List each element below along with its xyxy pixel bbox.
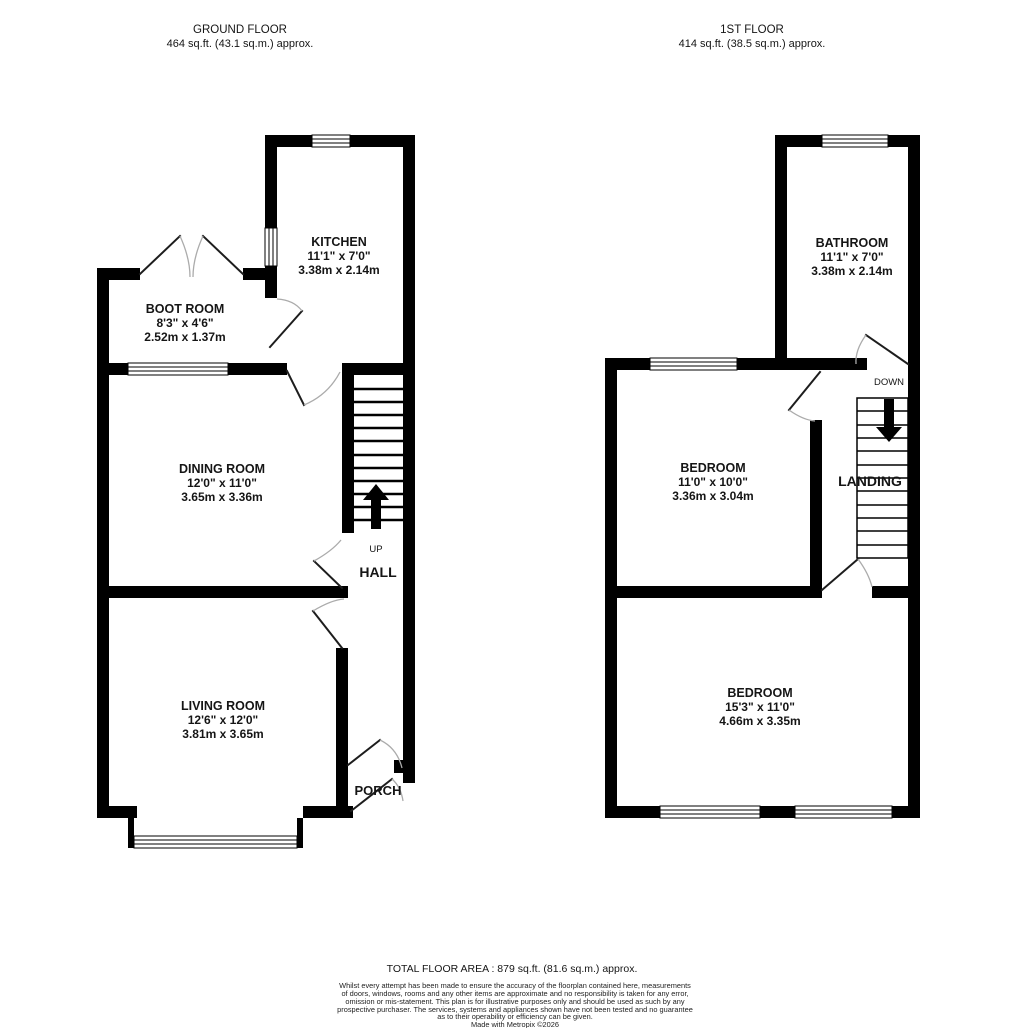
total-floor-area: TOTAL FLOOR AREA : 879 sq.ft. (81.6 sq.m… [387, 963, 638, 975]
up-arrow-head [363, 484, 389, 500]
door-arc [789, 410, 815, 421]
wall-bottom-left [97, 806, 137, 818]
door-arc [193, 236, 203, 277]
hall-kitchen-door [287, 371, 340, 405]
bedroom-front-window [650, 358, 737, 370]
wall-segment [228, 363, 287, 375]
bootroom-dim-metric: 2.52m x 1.37m [144, 330, 225, 344]
door-leaf [140, 236, 180, 274]
window-glass [265, 228, 277, 266]
bedroom-front-door [789, 372, 820, 421]
bedroom-front-label: BEDROOM [680, 461, 745, 475]
staircase-up [354, 389, 403, 529]
bootroom-dim-imperial: 8'3" x 4'6" [156, 316, 213, 330]
wall-kitchen-bottom [342, 363, 415, 375]
window-glass [134, 836, 297, 848]
bedroom-front-dim-metric: 3.36m x 3.04m [672, 489, 753, 503]
door-leaf [822, 559, 858, 590]
kitchen-side-window [265, 228, 277, 266]
wall-landing-top [775, 358, 867, 370]
landing-label: LANDING [838, 473, 902, 489]
window-glass [312, 135, 350, 147]
kitchen-dim-imperial: 11'1" x 7'0" [307, 249, 370, 263]
living-room-label: LIVING ROOM [181, 699, 265, 713]
bedroom-rear-door [822, 559, 872, 590]
wall-bootroom-top-right [243, 268, 277, 280]
front-door [348, 740, 402, 768]
bootroom-kitchen-door [270, 299, 302, 347]
ground-floor-area: 464 sq.ft. (43.1 sq.m.) approx. [167, 38, 314, 50]
door-leaf [348, 740, 380, 765]
dining-room-label: DINING ROOM [179, 462, 265, 476]
door-arc [858, 559, 872, 587]
wall-kitchen-left-upper [265, 135, 277, 228]
bedroom-rear-window-right [795, 806, 892, 818]
wall-right-outer [908, 135, 920, 818]
dining-room-dim-imperial: 12'0" x 11'0" [187, 476, 257, 490]
living-hall-door [313, 599, 344, 648]
bedroom-rear-dim-metric: 4.66m x 3.35m [719, 714, 800, 728]
kitchen-label: KITCHEN [311, 235, 367, 249]
dining-room-dim-metric: 3.65m x 3.36m [181, 490, 262, 504]
door-leaf [203, 236, 243, 274]
door-leaf [314, 561, 342, 588]
first-floor-title: 1ST FLOOR [720, 24, 784, 36]
kitchen-top-window [312, 135, 350, 147]
up-label: UP [369, 544, 382, 555]
bootroom-french-doors [140, 236, 243, 277]
door-arc [277, 299, 302, 311]
bathroom-window [822, 135, 888, 147]
door-arc [304, 372, 340, 405]
door-leaf [287, 371, 304, 405]
door-arc [314, 540, 341, 561]
window-glass [128, 363, 228, 375]
living-room-bay-window [134, 836, 297, 848]
bathroom-dim-metric: 3.38m x 2.14m [811, 264, 892, 278]
window-glass [795, 806, 892, 818]
bay-window-side-left [128, 818, 134, 848]
floorplan-page: GROUND FLOOR 464 sq.ft. (43.1 sq.m.) app… [0, 0, 1024, 1028]
down-arrow-shaft [884, 399, 894, 427]
up-arrow-shaft [371, 500, 381, 529]
wall-bottom-right [303, 806, 353, 818]
door-leaf [313, 611, 342, 648]
bedroom-front-dim-imperial: 11'0" x 10'0" [678, 475, 748, 489]
first-floor-plan: BATHROOM 11'1" x 7'0" 3.38m x 2.14m BEDR… [605, 135, 920, 818]
door-leaf [270, 311, 302, 347]
wall-left-outer [97, 268, 109, 818]
wall-living-right [336, 648, 348, 806]
bootroom-window [128, 363, 228, 375]
window-glass [660, 806, 760, 818]
door-leaf [866, 335, 908, 364]
wall-staircase-left [342, 375, 354, 533]
window-glass [650, 358, 737, 370]
credit-line: Made with Metropix ©2026 [471, 1020, 559, 1028]
wall-bedroom-right [810, 420, 822, 598]
wall-bedroom-divider-left [605, 586, 820, 598]
ground-floor-title: GROUND FLOOR [193, 24, 287, 36]
bedroom-rear-dim-imperial: 15'3" x 11'0" [725, 700, 795, 714]
wall-segment [109, 363, 128, 375]
bathroom-label: BATHROOM [816, 236, 889, 250]
living-room-dim-metric: 3.81m x 3.65m [182, 727, 263, 741]
dining-hall-door [314, 540, 342, 588]
bootroom-label: BOOT ROOM [146, 302, 224, 316]
down-label: DOWN [874, 377, 904, 388]
kitchen-dim-metric: 3.38m x 2.14m [298, 263, 379, 277]
window-glass [822, 135, 888, 147]
door-arc [313, 599, 344, 611]
ground-floor-plan: KITCHEN 11'1" x 7'0" 3.38m x 2.14m BOOT … [97, 135, 415, 848]
porch-label: PORCH [355, 783, 402, 798]
wall-dining-living-divider [97, 586, 336, 598]
hall-label: HALL [359, 564, 397, 580]
wall-right-outer [403, 135, 415, 783]
wall-bedroom-top-right [737, 358, 775, 370]
first-floor-area: 414 sq.ft. (38.5 sq.m.) approx. [679, 38, 826, 50]
bedroom-rear-window-left [660, 806, 760, 818]
bedroom-rear-label: BEDROOM [727, 686, 792, 700]
living-room-dim-imperial: 12'6" x 12'0" [188, 713, 258, 727]
footer: TOTAL FLOOR AREA : 879 sq.ft. (81.6 sq.m… [337, 963, 693, 1028]
door-leaf [789, 372, 820, 410]
door-arc [180, 236, 190, 277]
wall-porch-stub [394, 760, 404, 773]
floorplan-drawing: GROUND FLOOR 464 sq.ft. (43.1 sq.m.) app… [0, 0, 1024, 1028]
wall-bedroom-divider-right [872, 586, 920, 598]
wall-bathroom-left [775, 135, 787, 370]
bathroom-dim-imperial: 11'1" x 7'0" [820, 250, 883, 264]
bay-window-side-right [297, 818, 303, 848]
